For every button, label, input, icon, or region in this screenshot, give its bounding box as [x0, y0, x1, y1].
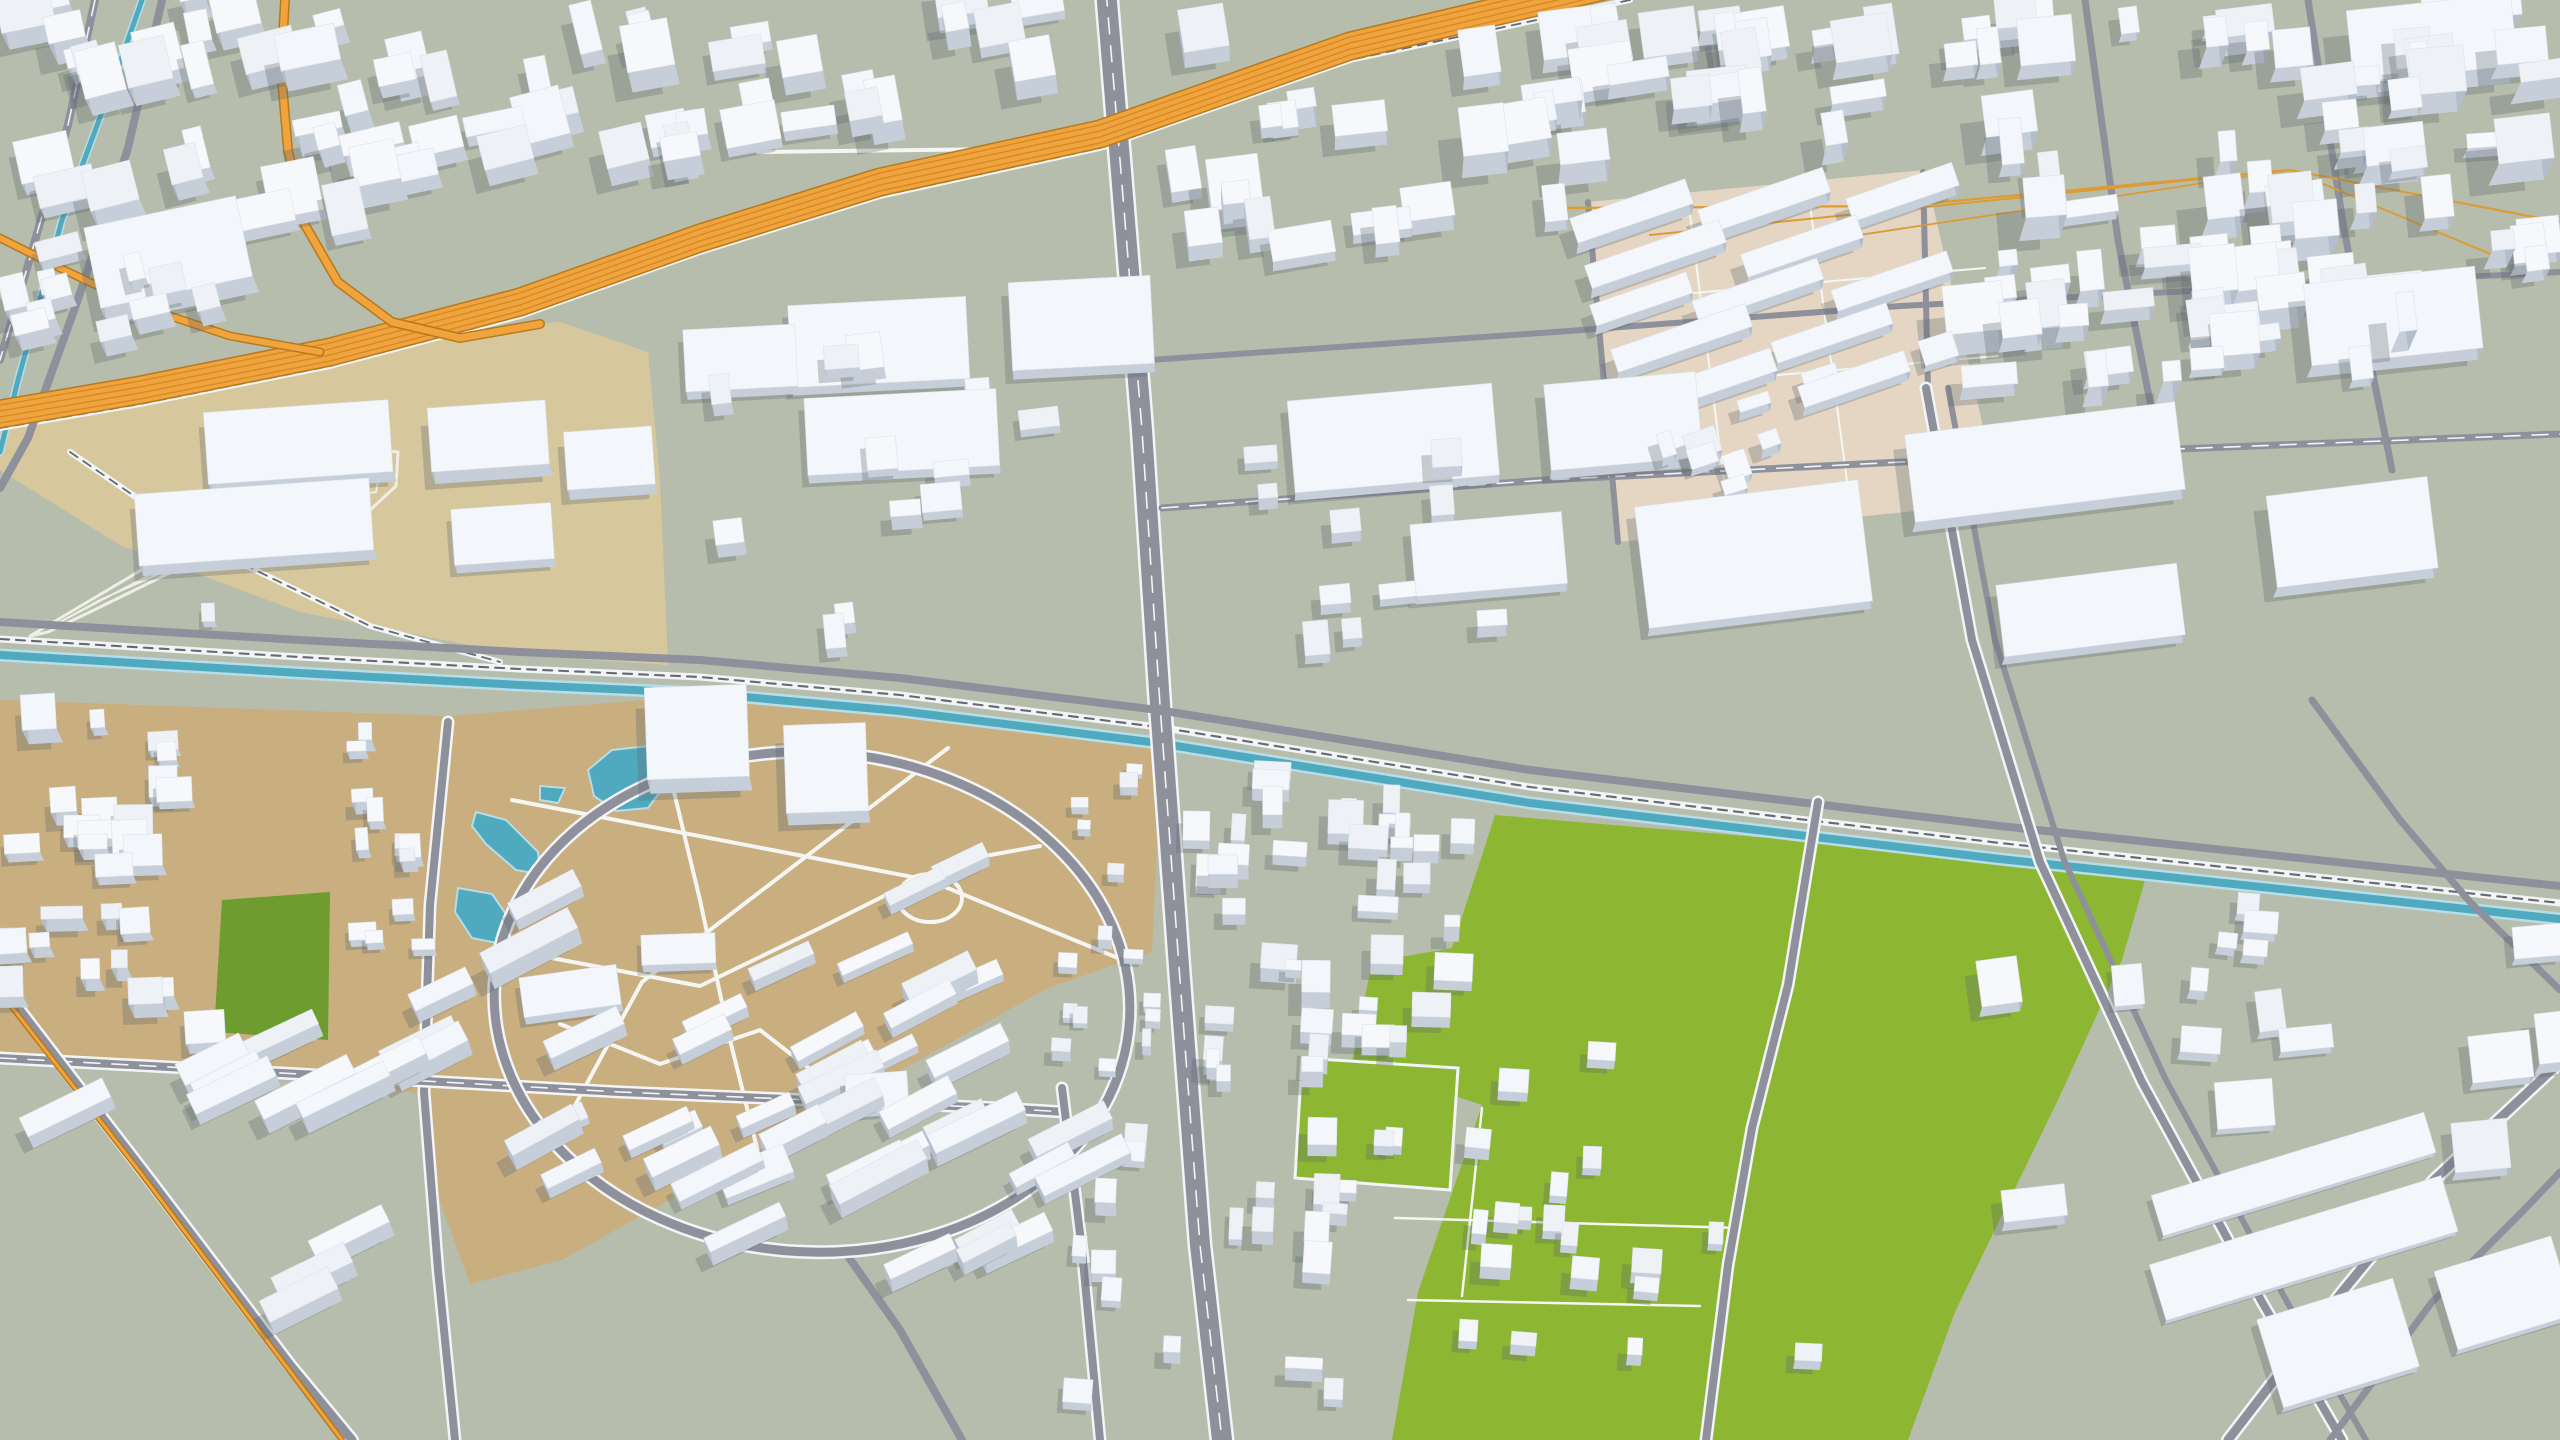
- center-sparse-building: [914, 481, 963, 525]
- factory: [1535, 372, 1703, 484]
- se-sparse-building: [2458, 1030, 2534, 1094]
- se-sparse-building: [2440, 1118, 2510, 1184]
- tan-small-row-building: [199, 603, 218, 630]
- city-3d-map: [0, 0, 2560, 1440]
- factory: [678, 324, 800, 404]
- factory: [1402, 512, 1567, 609]
- se-sparse-building: [1991, 1184, 2068, 1236]
- se-sparse-building: [2208, 1078, 2276, 1137]
- map-canvas: [0, 0, 2560, 1440]
- warehouse: [130, 478, 378, 581]
- avenue-east-north-building: [1372, 581, 1416, 611]
- se-sparse-building: [2503, 923, 2560, 969]
- big-box: [2253, 476, 2438, 602]
- se-sparse-building: [2106, 963, 2145, 1013]
- warehouse: [421, 400, 553, 490]
- west-tan-district-building: [116, 907, 154, 947]
- factory: [1001, 275, 1155, 384]
- factory: [1280, 383, 1499, 505]
- center-sparse-building: [860, 436, 899, 481]
- se-sparse-building: [2271, 1024, 2334, 1062]
- warehouse: [558, 426, 658, 505]
- center-sparse-building: [1013, 406, 1061, 441]
- factory: [798, 389, 1001, 488]
- west-tan-district-building: [91, 852, 136, 889]
- park-building: [637, 933, 718, 976]
- east-of-avenue-building: [1351, 895, 1398, 923]
- park-building: [636, 684, 753, 801]
- park-building: [775, 723, 870, 832]
- warehouse: [446, 503, 556, 578]
- west-tan-district-building: [153, 776, 196, 813]
- big-box: [1626, 480, 1872, 641]
